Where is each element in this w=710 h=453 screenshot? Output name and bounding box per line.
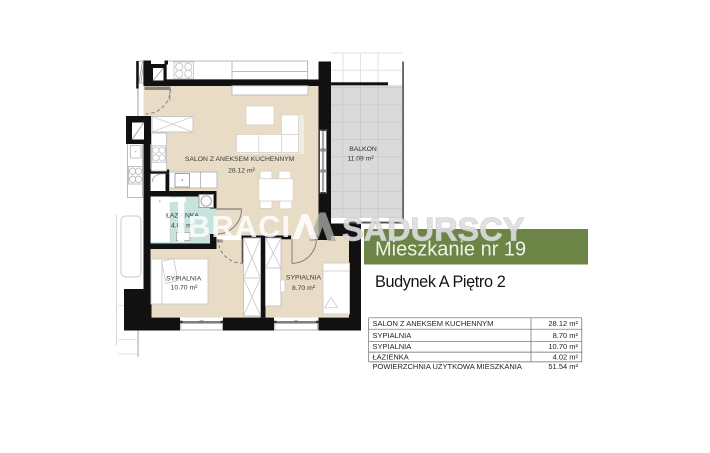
svg-text:8.70 m²: 8.70 m² xyxy=(292,285,316,292)
svg-text:SYPIALNIA: SYPIALNIA xyxy=(286,274,322,281)
svg-text:SALON Z ANEKSEM KUCHENNYM: SALON Z ANEKSEM KUCHENNYM xyxy=(185,156,295,163)
svg-text:BRACI: BRACI xyxy=(188,209,291,244)
svg-text:10.70 m²: 10.70 m² xyxy=(171,285,199,292)
svg-text:SYPIALNIA: SYPIALNIA xyxy=(166,276,202,283)
svg-text:8.70 m²: 8.70 m² xyxy=(553,331,579,340)
svg-text:BALKON: BALKON xyxy=(349,146,377,153)
svg-text:28.12 m²: 28.12 m² xyxy=(548,319,578,328)
svg-text:4.02 m²: 4.02 m² xyxy=(553,352,579,361)
svg-text:28.12 m²: 28.12 m² xyxy=(228,168,256,175)
svg-text:POWIERZCHNIA UŻYTKOWA MIESZKAN: POWIERZCHNIA UŻYTKOWA MIESZKANIA xyxy=(373,362,522,371)
svg-text:ŁAZIENKA: ŁAZIENKA xyxy=(373,352,409,361)
svg-text:SYPIALNIA: SYPIALNIA xyxy=(373,342,412,351)
svg-text:SYPIALNIA: SYPIALNIA xyxy=(373,331,412,340)
svg-text:11.09 m²: 11.09 m² xyxy=(347,156,374,163)
svg-text:Budynek A Piętro 2: Budynek A Piętro 2 xyxy=(375,273,506,291)
svg-text:Mieszkanie nr 19: Mieszkanie nr 19 xyxy=(375,239,526,261)
svg-text:10.70 m²: 10.70 m² xyxy=(548,342,578,351)
svg-text:SALON Z ANEKSEM KUCHENNYM: SALON Z ANEKSEM KUCHENNYM xyxy=(373,319,494,328)
svg-text:51.54 m²: 51.54 m² xyxy=(548,362,578,371)
